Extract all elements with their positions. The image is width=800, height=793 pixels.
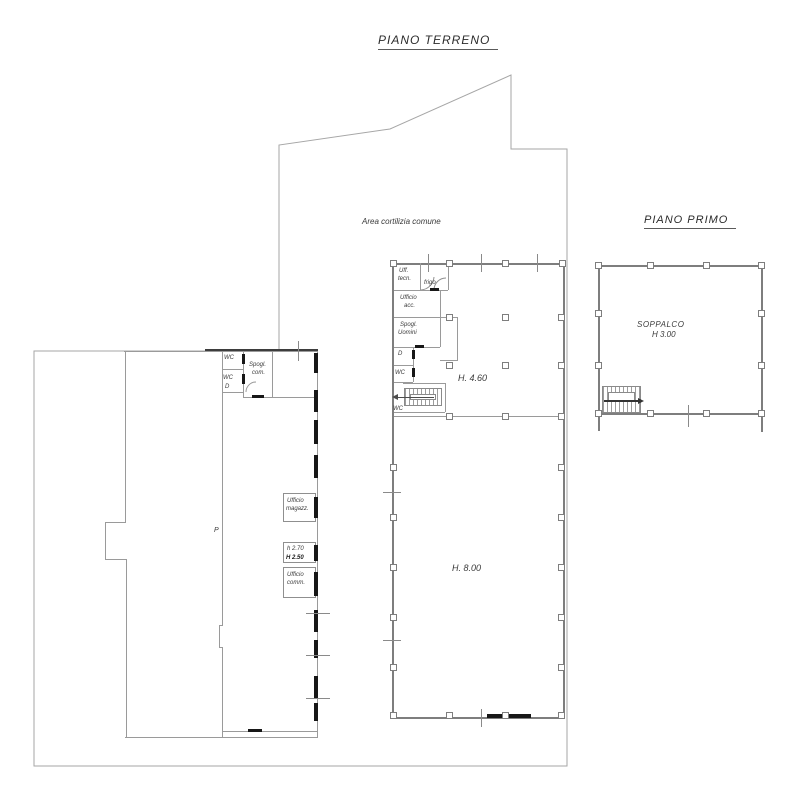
dimension-tick — [306, 655, 330, 656]
wall — [272, 351, 273, 397]
room-label-uff-tecn: Uff. — [399, 268, 408, 274]
wall — [394, 412, 445, 413]
column-marker — [502, 314, 509, 321]
room-label-wc: WC — [223, 375, 233, 381]
door-opening-marker — [242, 354, 245, 364]
column-marker — [595, 410, 602, 417]
room-label-ufficio-acc: acc. — [404, 303, 415, 309]
room-label-magazzino: magazz. — [286, 506, 309, 512]
wall — [440, 360, 458, 361]
column-marker — [758, 362, 765, 369]
wall — [125, 351, 126, 522]
column-marker — [758, 410, 765, 417]
ground-floor-title: PIANO TERRENO — [378, 33, 498, 50]
column-marker — [558, 314, 565, 321]
column-marker — [390, 614, 397, 621]
column-marker — [558, 514, 565, 521]
door-opening-marker — [242, 374, 245, 384]
room-label-wc: WC — [395, 370, 405, 376]
column-marker — [390, 712, 397, 719]
door-opening-marker — [314, 572, 318, 596]
door-opening-marker — [314, 390, 318, 412]
wall — [125, 737, 318, 738]
room-label-spogliatoio: com. — [252, 370, 265, 376]
wall — [598, 413, 763, 415]
column-marker — [647, 410, 654, 417]
door-opening-marker — [314, 676, 318, 698]
room-label-ufficio-acc: Ufficio — [400, 295, 417, 301]
room-label-ufficio: Ufficio — [287, 572, 304, 578]
dimension-tick — [688, 405, 689, 427]
door-opening-marker — [314, 497, 318, 518]
door-opening-marker — [314, 353, 318, 373]
column-marker — [390, 464, 397, 471]
wall — [394, 365, 413, 366]
wall — [105, 559, 126, 560]
column-marker — [558, 614, 565, 621]
dimension-tick — [306, 613, 330, 614]
wall — [124, 351, 318, 352]
column-marker — [559, 260, 566, 267]
door-niche — [219, 647, 223, 648]
door-opening-marker — [314, 545, 318, 561]
wall — [403, 383, 445, 384]
column-marker — [502, 362, 509, 369]
height-label-h460: H. 4.60 — [458, 374, 487, 383]
dimension-tick — [537, 254, 538, 272]
wall — [420, 263, 421, 290]
wall — [761, 415, 763, 432]
room-label-d: D — [225, 384, 229, 390]
wall — [457, 317, 458, 360]
column-marker — [390, 564, 397, 571]
door-opening-marker — [314, 420, 318, 444]
height-label-h800: H. 8.00 — [452, 564, 481, 573]
column-marker — [558, 564, 565, 571]
dimension-tick — [306, 698, 330, 699]
column-marker — [558, 362, 565, 369]
stair-direction-arrow — [604, 400, 638, 402]
door-opening-marker — [314, 703, 318, 721]
height-label: h 2.70 — [287, 546, 304, 552]
column-marker — [446, 413, 453, 420]
column-marker — [595, 362, 602, 369]
column-marker — [390, 664, 397, 671]
wall — [392, 263, 565, 265]
door-opening-marker — [252, 395, 264, 398]
room-label-wc: WC — [224, 355, 234, 361]
column-marker — [758, 310, 765, 317]
courtyard-label: Area cortilizia comune — [362, 218, 441, 226]
room-label-frigo: frigo — [424, 280, 436, 286]
column-marker — [502, 260, 509, 267]
room-label-uff-tecn: tecn. — [398, 276, 411, 282]
door-opening-marker — [412, 368, 415, 377]
dimension-tick — [481, 254, 482, 272]
wall — [222, 392, 243, 393]
door-opening-marker — [248, 729, 262, 732]
soppalco-label: SOPPALCO — [637, 321, 684, 329]
room-label-spogliatoio: Spogl. — [249, 362, 266, 368]
floor-plan-drawing: PIANO TERRENO PIANO PRIMO Area cortilizi… — [0, 0, 800, 793]
column-marker — [502, 712, 509, 719]
column-marker — [558, 413, 565, 420]
dimension-tick — [383, 492, 401, 493]
wall — [448, 263, 449, 290]
column-marker — [446, 260, 453, 267]
door-mark-p: P — [214, 527, 219, 534]
wall — [440, 290, 441, 347]
wall — [563, 263, 565, 719]
column-marker — [558, 664, 565, 671]
room-label-ufficio: Ufficio — [287, 498, 304, 504]
wall — [392, 717, 565, 719]
column-marker — [390, 260, 397, 267]
wall — [598, 265, 600, 415]
wall — [598, 415, 600, 431]
column-marker — [558, 464, 565, 471]
wall — [222, 647, 223, 737]
room-label-comm: comm. — [287, 580, 305, 586]
door-opening-marker — [415, 345, 424, 348]
room-label-wc: WC — [393, 406, 403, 412]
column-marker — [595, 310, 602, 317]
arrowhead-icon — [392, 394, 398, 400]
room-label-spogliatoio: Spogl. — [400, 322, 417, 328]
wall — [445, 383, 446, 412]
column-marker — [390, 514, 397, 521]
height-label: H 2.50 — [286, 555, 304, 561]
wall — [105, 522, 126, 523]
column-marker — [558, 712, 565, 719]
wall — [394, 416, 563, 417]
wall — [761, 265, 763, 415]
wall — [598, 265, 763, 267]
wall — [126, 559, 127, 737]
wall — [222, 369, 243, 370]
column-marker — [758, 262, 765, 269]
wall — [222, 731, 317, 732]
column-marker — [647, 262, 654, 269]
door-opening-marker — [314, 455, 318, 478]
column-marker — [703, 262, 710, 269]
column-marker — [502, 413, 509, 420]
column-marker — [446, 314, 453, 321]
door-opening-marker — [412, 350, 415, 359]
wall — [392, 263, 394, 719]
dimension-tick — [383, 640, 401, 641]
dimension-tick — [298, 341, 299, 361]
stair-direction-arrow — [396, 397, 434, 398]
column-marker — [446, 362, 453, 369]
door-niche — [219, 625, 220, 647]
column-marker — [595, 262, 602, 269]
door-opening-marker — [487, 714, 531, 718]
soppalco-height-label: H 3.00 — [652, 331, 676, 339]
first-floor-title: PIANO PRIMO — [644, 214, 736, 229]
dimension-tick — [428, 254, 429, 272]
room-label-d: D — [398, 351, 402, 357]
arrowhead-icon — [638, 398, 644, 404]
column-marker — [446, 712, 453, 719]
wall — [105, 522, 106, 559]
dimension-tick — [481, 709, 482, 727]
column-marker — [703, 410, 710, 417]
room-label-spogliatoio: Uomini — [398, 330, 417, 336]
door-opening-marker — [430, 288, 439, 291]
